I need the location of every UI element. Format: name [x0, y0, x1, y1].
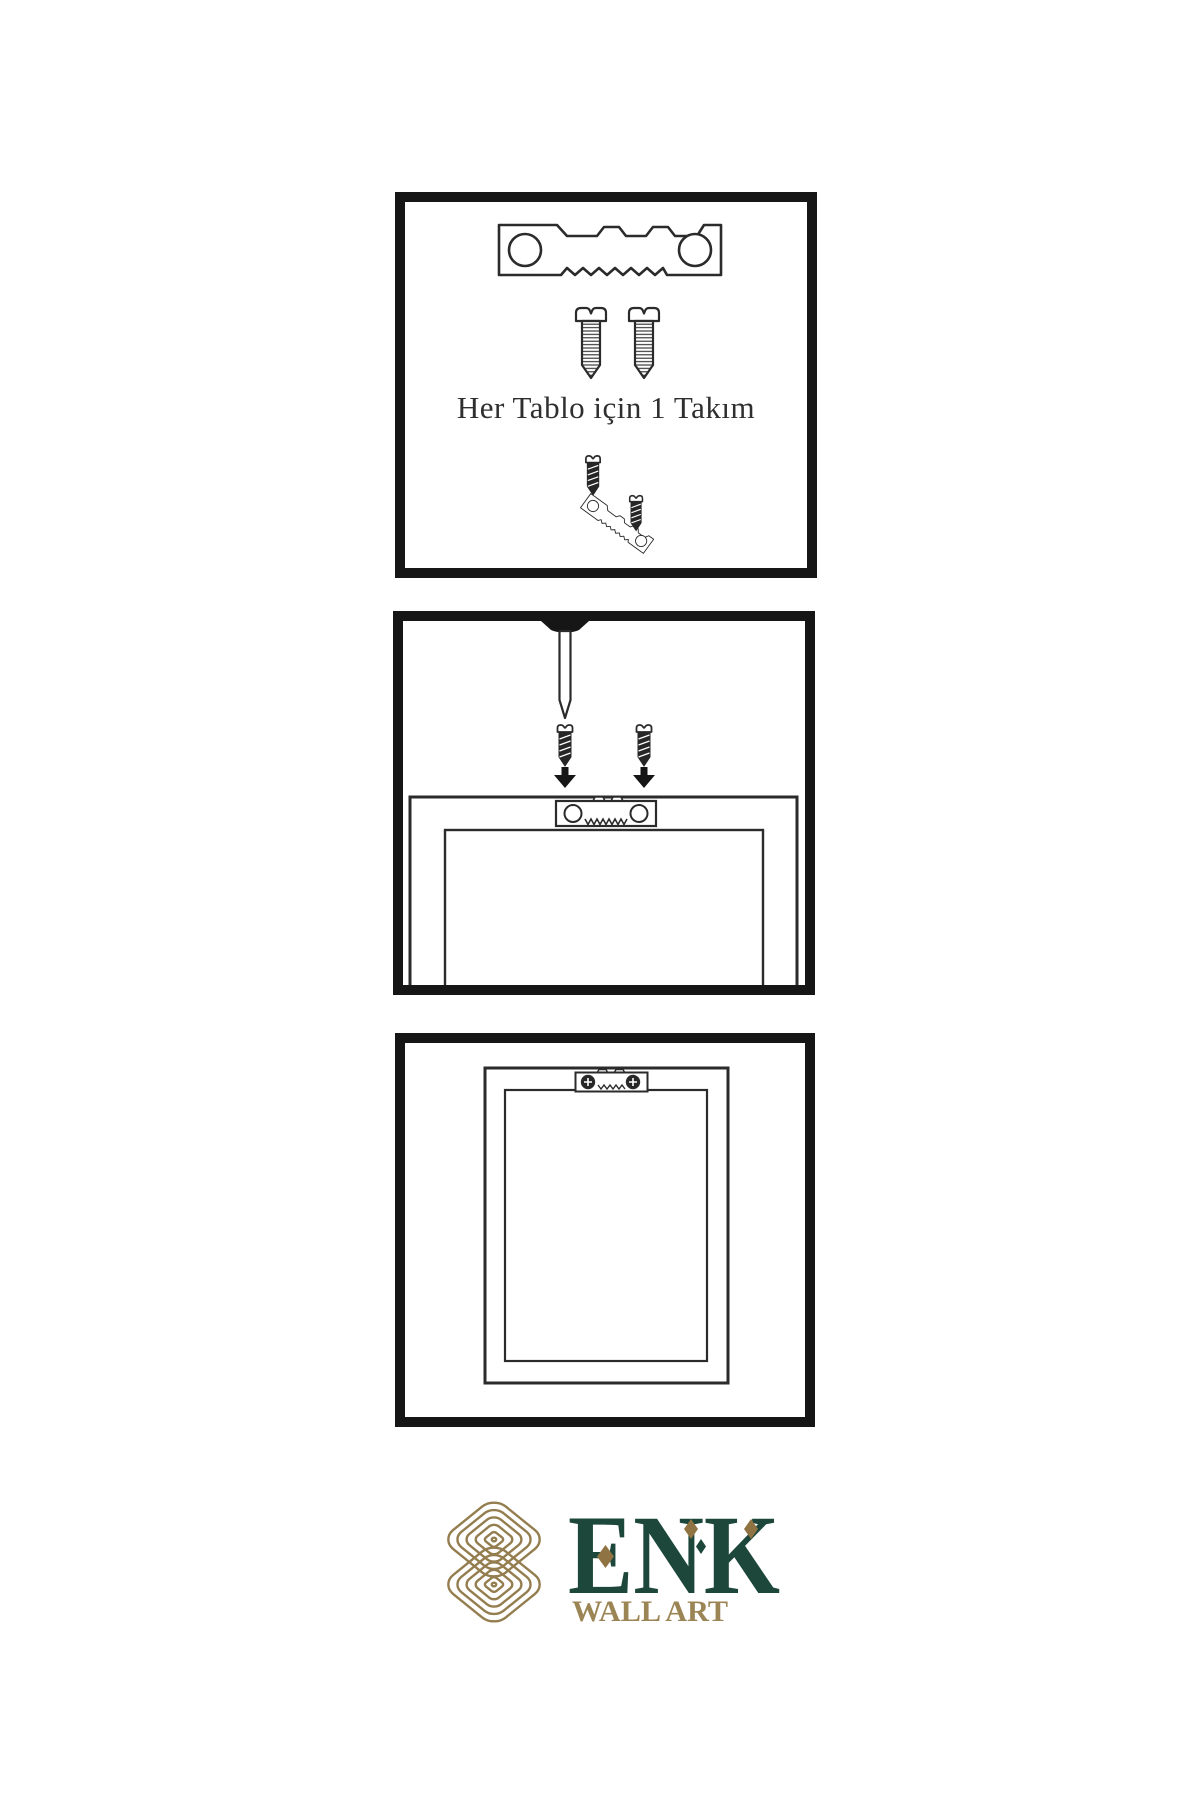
- brand-tagline: WALL ART: [572, 1588, 742, 1630]
- hanger-assembly-icon: [580, 456, 653, 554]
- panel-mounted-frame: [395, 1033, 815, 1427]
- hanging-kit-illustration: [405, 202, 807, 568]
- arrow-down-icon: [633, 767, 655, 788]
- screw-icon: [576, 308, 606, 378]
- kit-caption: Her Tablo için 1 Takım: [405, 390, 807, 426]
- screw-dark-icon: [558, 725, 573, 766]
- hanger-mounted-icon: [576, 1070, 648, 1092]
- instruction-sheet: Her Tablo için 1 Takım: [0, 0, 1200, 1800]
- enk-knot-logo-icon: [437, 1497, 551, 1627]
- panel-install-hanger: [393, 611, 815, 995]
- screw-icon: [629, 308, 659, 378]
- frame-back-icon: [485, 1068, 728, 1383]
- sawtooth-hanger-icon: [499, 225, 721, 275]
- nail-icon: [541, 621, 589, 718]
- install-illustration: [403, 621, 805, 985]
- arrow-down-icon: [554, 767, 576, 788]
- sawtooth-hanger-icon: [556, 797, 656, 826]
- panel-hanging-kit: Her Tablo için 1 Takım: [395, 192, 817, 578]
- screw-dark-icon: [637, 725, 652, 766]
- mounted-illustration: [405, 1043, 805, 1417]
- brand-tagline-text: WALL ART: [572, 1595, 728, 1628]
